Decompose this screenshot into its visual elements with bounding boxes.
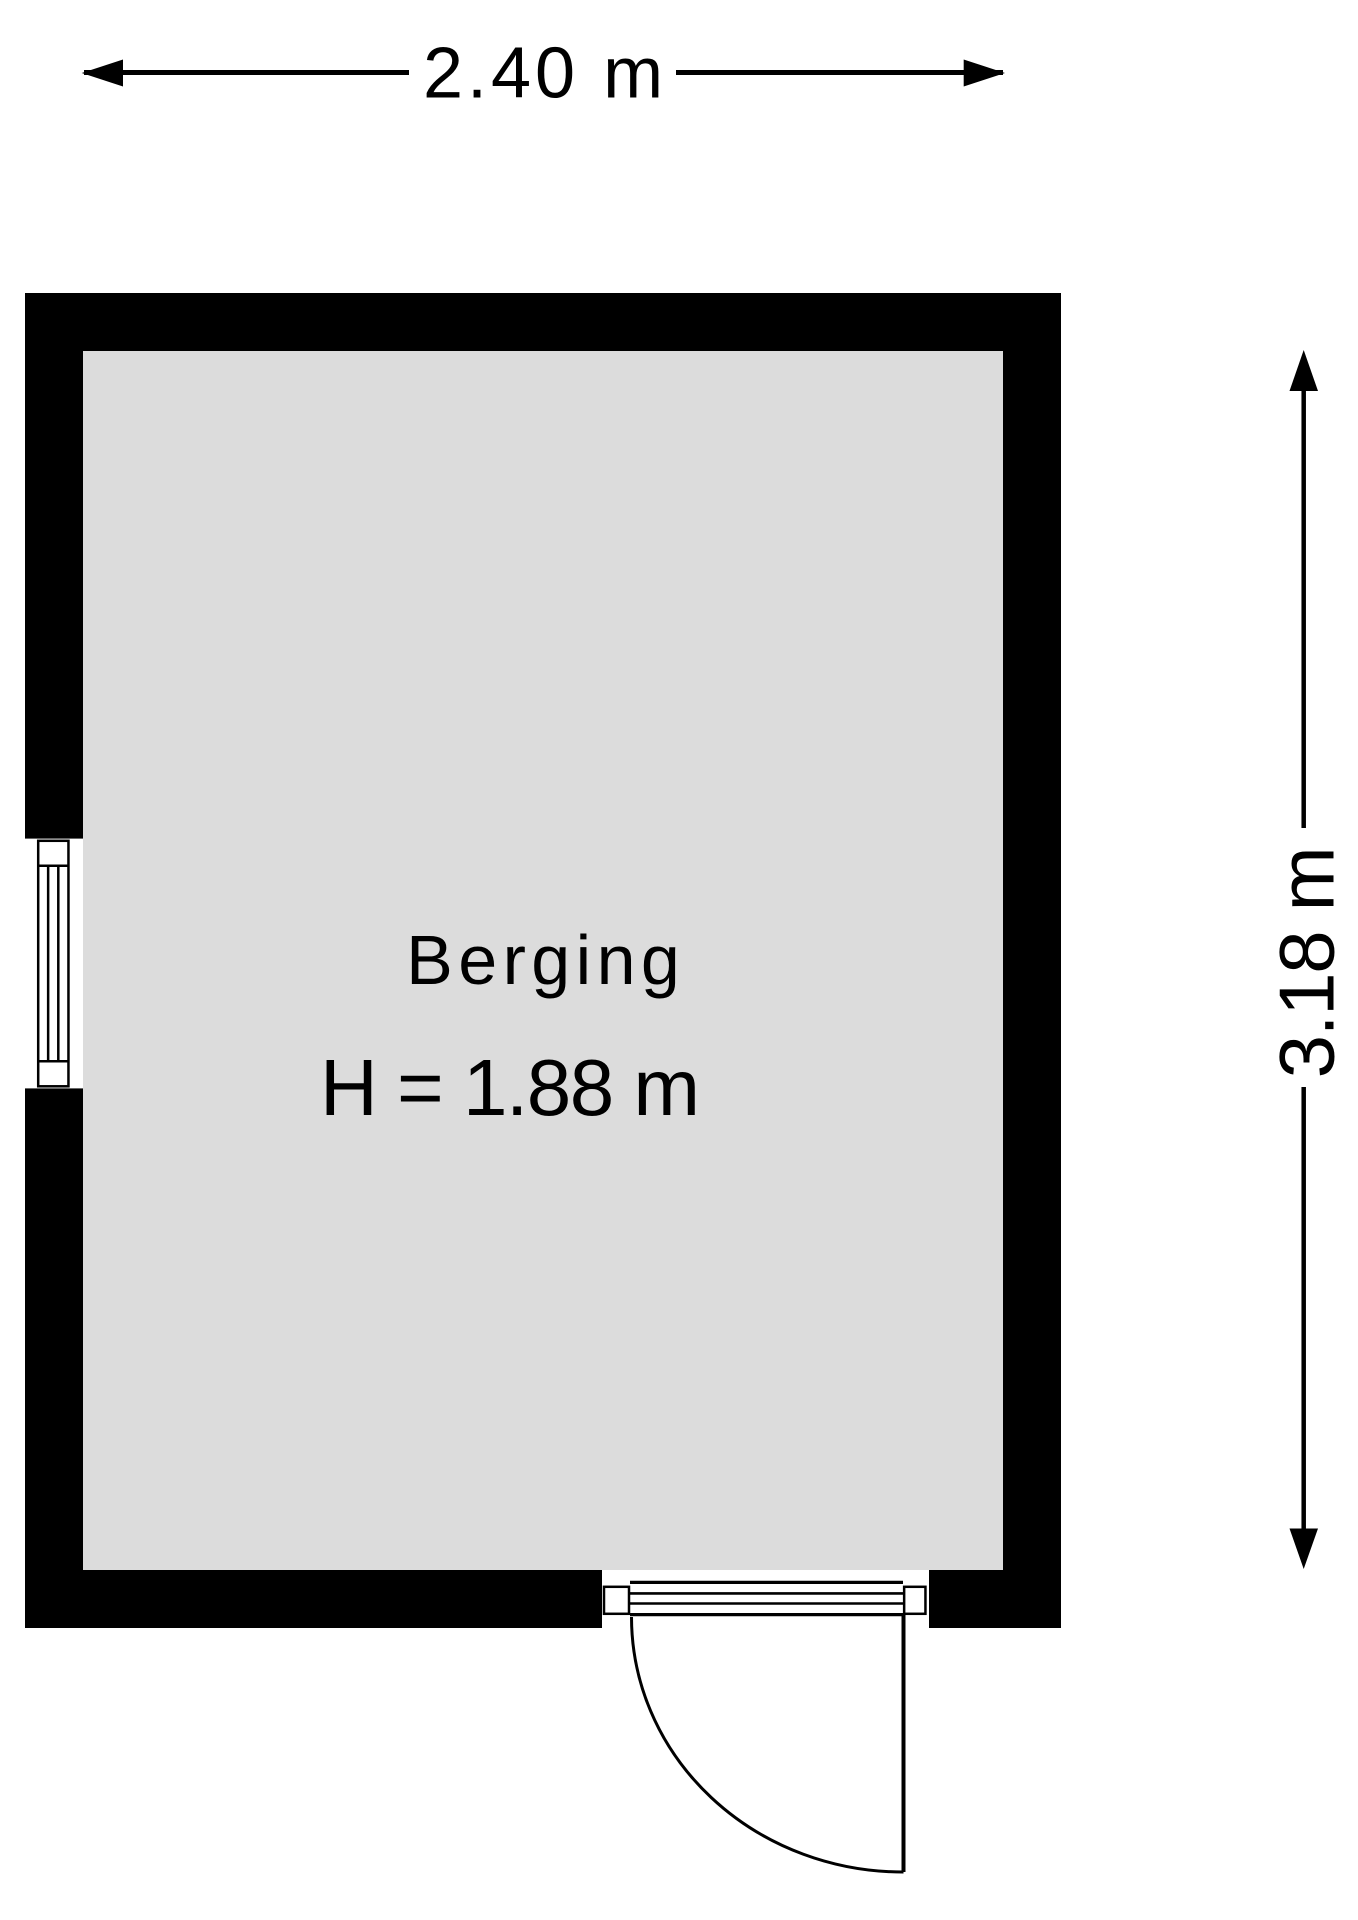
svg-text:H = 1.88 m: H = 1.88 m <box>320 1043 699 1132</box>
svg-text:2.40 m: 2.40 m <box>423 34 667 114</box>
svg-text:3.18 m: 3.18 m <box>1262 848 1350 1079</box>
svg-text:Berging: Berging <box>406 921 685 999</box>
